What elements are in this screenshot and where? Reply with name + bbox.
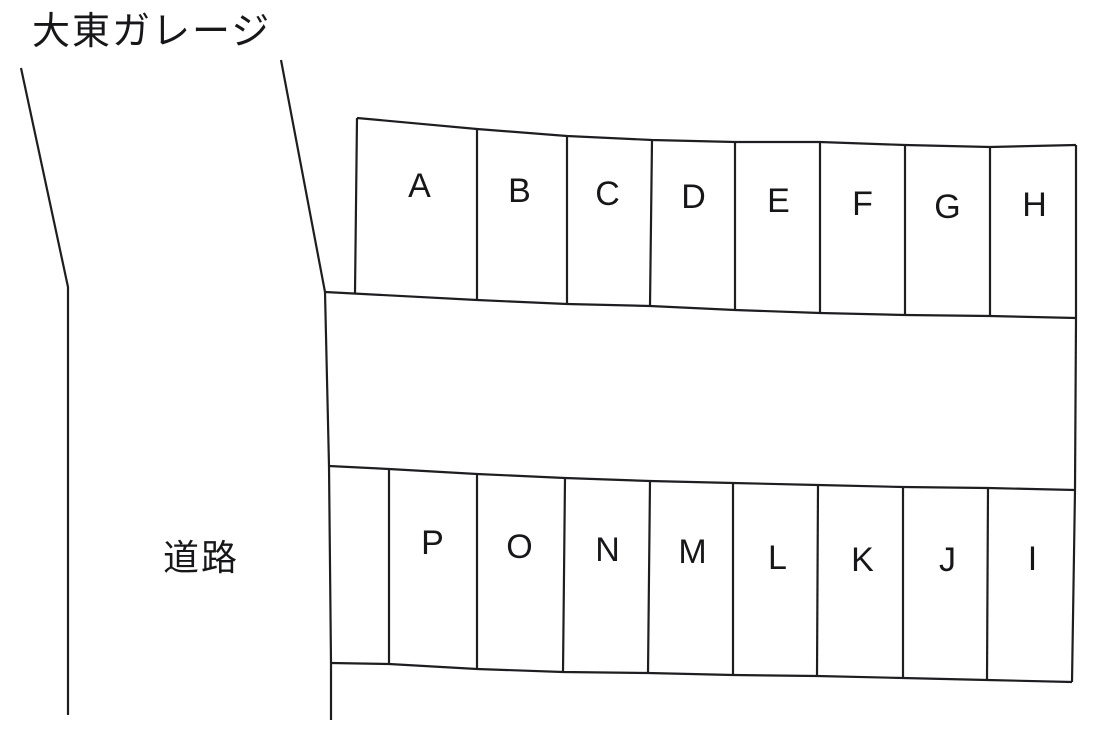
driveway-aisle — [325, 292, 1076, 490]
row-upper: A B C D E F G H — [325, 118, 1076, 318]
space-label-d: D — [681, 178, 707, 216]
space-label-m: M — [678, 533, 707, 571]
parking-space-k — [817, 485, 903, 678]
parking-space-h — [990, 145, 1076, 318]
parking-space-m — [648, 481, 733, 675]
space-label-g: G — [934, 188, 961, 226]
road-inner-boundary-line — [281, 60, 331, 720]
parking-space-d — [650, 140, 735, 310]
parking-space-p — [389, 469, 477, 669]
space-label-b: B — [508, 172, 532, 210]
parking-space-f — [820, 142, 905, 315]
space-label-i: I — [1028, 540, 1038, 578]
parking-space-i — [987, 488, 1075, 682]
space-label-f: F — [852, 185, 874, 223]
space-label-e: E — [767, 182, 791, 220]
parking-space-l — [733, 483, 818, 676]
space-label-a: A — [408, 167, 432, 205]
parking-space-n — [563, 478, 650, 673]
parking-space-e — [735, 142, 820, 313]
parking-space-o — [477, 474, 565, 672]
space-label-o: O — [506, 528, 533, 566]
space-label-c: C — [595, 175, 621, 213]
parking-diagram-canvas: A B C D E F G H — [0, 0, 1099, 729]
parking-space-b — [477, 129, 567, 304]
parking-space-a — [355, 118, 477, 300]
row-lower: P O N M L K J I — [329, 466, 1075, 682]
road-outer-boundary-line — [21, 68, 68, 715]
space-label-l: L — [768, 539, 788, 577]
space-label-h: H — [1022, 186, 1048, 224]
space-label-p: P — [421, 524, 445, 562]
space-label-j: J — [939, 541, 957, 579]
parking-space-g — [905, 145, 990, 316]
parking-diagram-page: 大東ガレージ 道路 A B — [0, 0, 1099, 729]
parking-space-c — [567, 136, 652, 306]
unlabeled-strip — [329, 466, 389, 664]
parking-space-j — [903, 487, 988, 680]
space-label-k: K — [851, 541, 875, 579]
aisle-right-edge — [1075, 318, 1076, 490]
space-label-n: N — [595, 531, 621, 569]
